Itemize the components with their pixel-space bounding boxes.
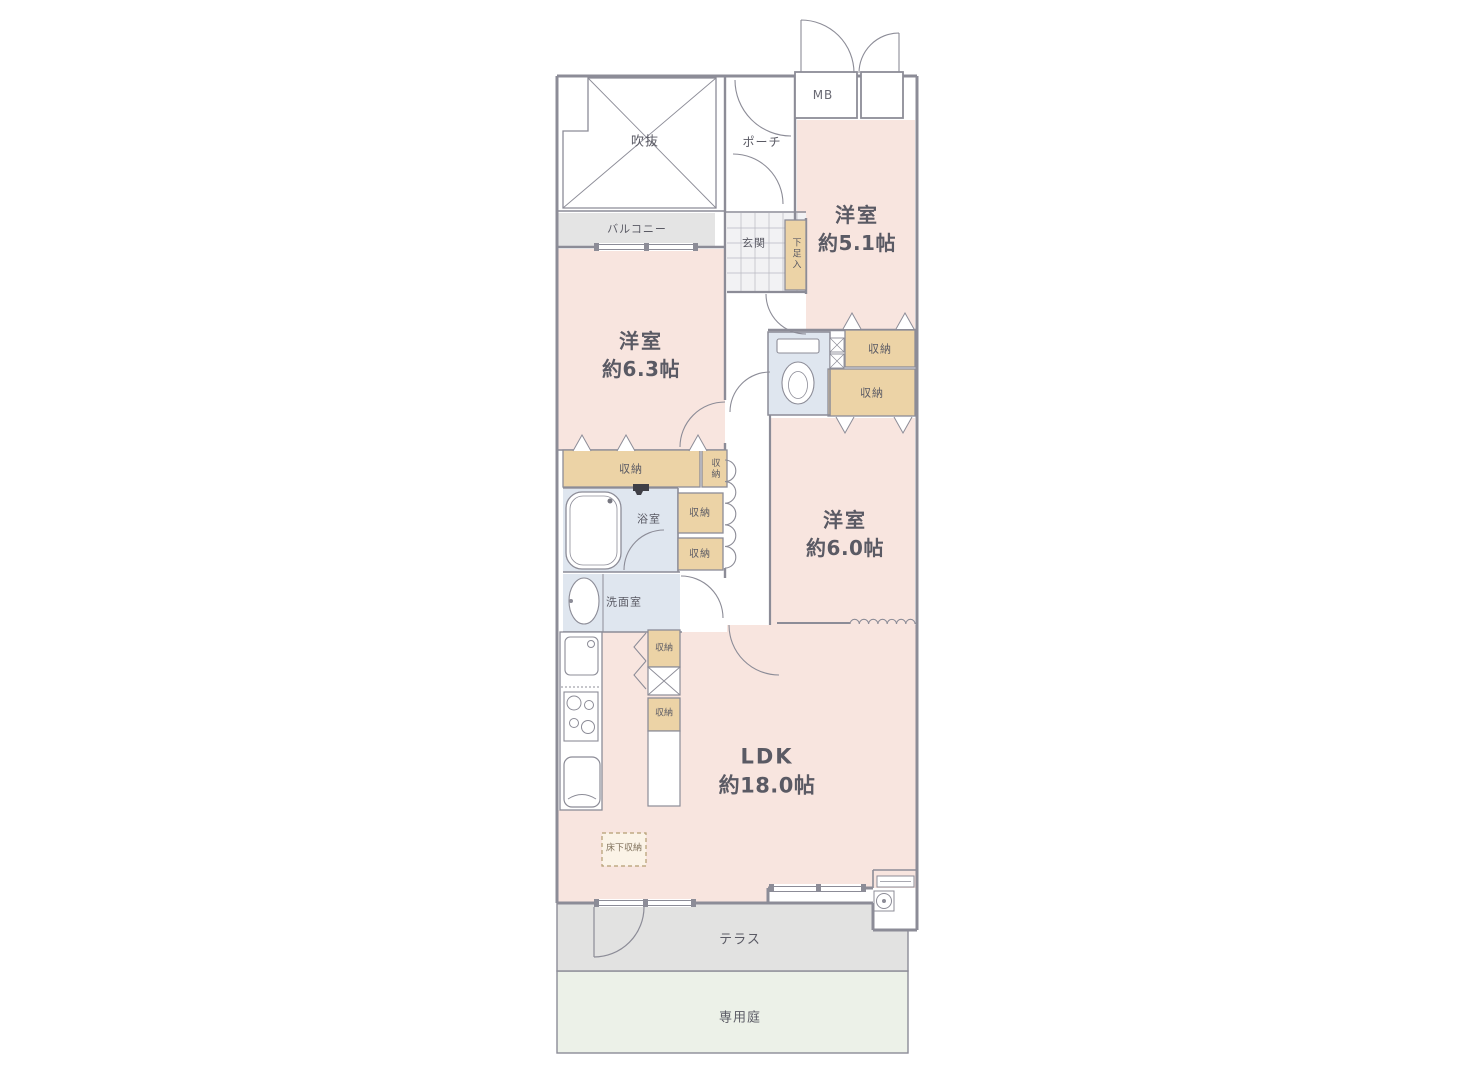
kitchen-island: [648, 667, 680, 806]
storage-label-1: 収納: [868, 344, 892, 355]
balcony-label: バルコニー: [607, 224, 667, 235]
meter-box: [795, 20, 903, 118]
washroom-label: 洗面室: [606, 597, 642, 608]
room-label-ldk: LDK 約18.0帖: [719, 743, 816, 802]
storage-label-7: 収納: [655, 645, 673, 654]
storage-label-3: 収納: [619, 464, 643, 475]
room-label-western-5-1: 洋室 約5.1帖: [818, 201, 896, 257]
porch-label: ポーチ: [742, 136, 781, 148]
bathroom-label: 浴室: [637, 514, 661, 525]
bathtub: [566, 492, 621, 569]
storage-label-2: 収納: [860, 388, 884, 399]
room-label-western-6-3: 洋室 約6.3帖: [602, 327, 680, 383]
storage-label-4: 収納: [710, 458, 719, 480]
stove: [564, 692, 598, 741]
terrace-label: テラス: [719, 934, 761, 947]
storage-label-8: 収納: [655, 710, 673, 719]
room-label-western-6-0: 洋室 約6.0帖: [806, 506, 884, 562]
meter-box-label: MB: [813, 89, 834, 101]
floorplan-canvas: MB 吹抜 ポーチ バルコニー 玄関 下足入 洋室 約5.1帖 洋室 約6.3帖…: [0, 0, 1460, 1080]
refrigerator: [564, 757, 600, 807]
entrance-label: 玄関: [742, 238, 766, 249]
private-garden-label: 専用庭: [719, 1012, 761, 1025]
storage-label-6: 収納: [689, 550, 711, 560]
underfloor-storage-label: 床下収納: [606, 845, 642, 854]
kitchen-sink: [565, 637, 598, 675]
void-label: 吹抜: [631, 136, 659, 149]
floorplan-drawing: [0, 0, 1460, 1080]
shoe-cabinet-label: 下足入: [791, 238, 800, 271]
storage-label-5: 収納: [689, 509, 711, 519]
